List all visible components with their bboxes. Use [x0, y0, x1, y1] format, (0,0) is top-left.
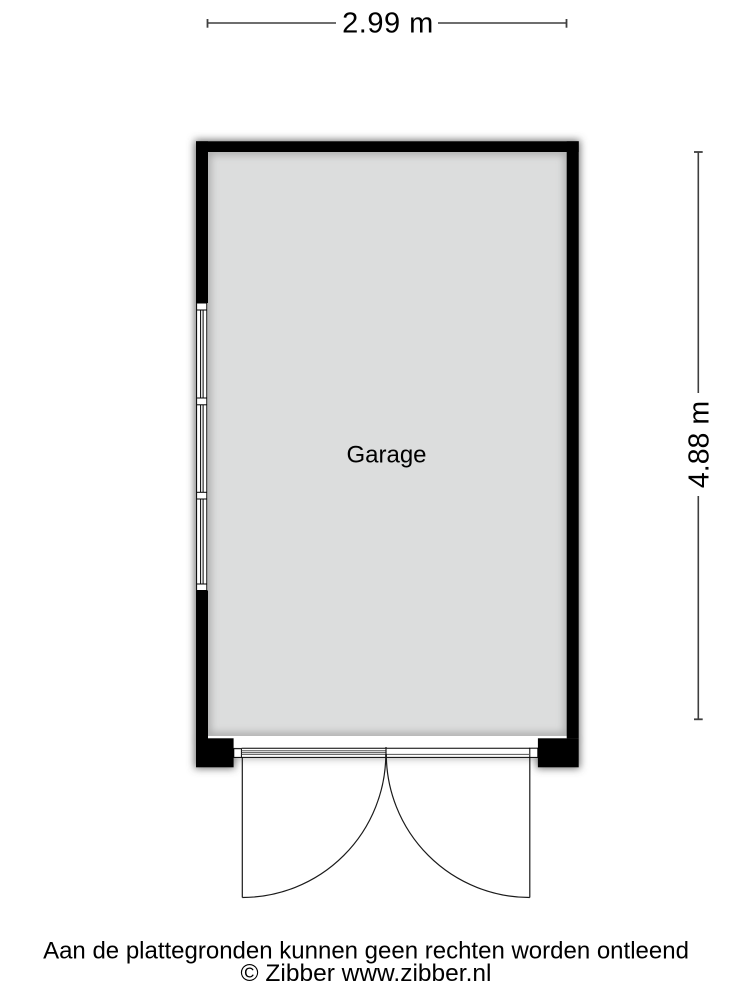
svg-text:2.99 m: 2.99 m — [342, 7, 434, 39]
svg-text:4.88 m: 4.88 m — [684, 401, 716, 488]
svg-text:Garage: Garage — [346, 442, 426, 469]
svg-text:© Zibber www.zibber.nl: © Zibber www.zibber.nl — [241, 960, 492, 987]
